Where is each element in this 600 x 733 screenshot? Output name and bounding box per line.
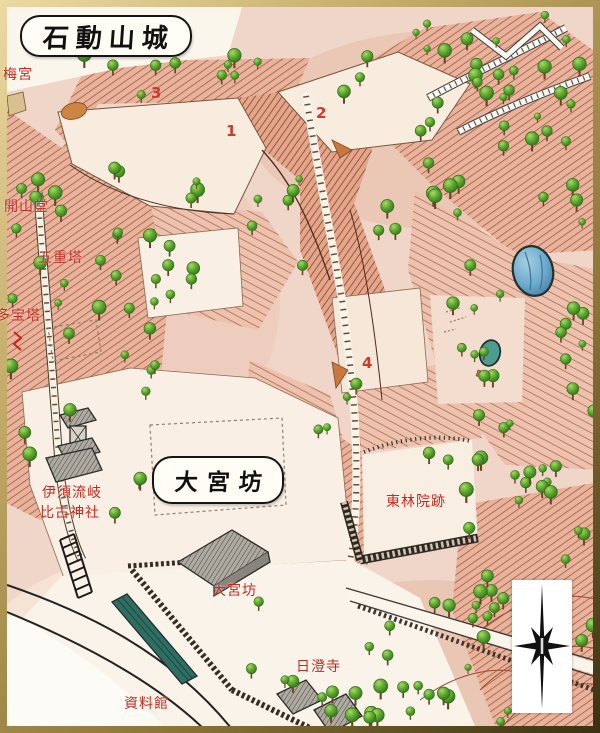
marker-bailey-2: 2: [316, 106, 326, 121]
marker-bailey-3: 3: [151, 86, 161, 101]
area-name: 大宮坊: [164, 463, 271, 497]
map-canvas: [7, 7, 593, 726]
map-title: 石動山城: [35, 18, 177, 55]
label-daiguubou-site: 大宮坊: [212, 582, 257, 600]
castle-map-illustration: 石動山城 大宮坊 梅宮 開山堂 五重塔 多宝塔 伊須流岐 比古神社 東林院跡 大…: [0, 0, 600, 733]
map-title-box: 石動山城: [20, 15, 192, 57]
label-nicchouji: 日澄寺: [296, 658, 341, 676]
label-shrine-line1: 伊須流岐: [42, 484, 102, 502]
label-umemiya: 梅宮: [3, 66, 33, 84]
terrain-drawing: [7, 7, 593, 726]
compass-rose: [512, 580, 572, 713]
label-kaisando: 開山堂: [4, 198, 49, 216]
label-torin-in-ato: 東林院跡: [386, 493, 446, 511]
north-arrow-icon: [512, 580, 572, 713]
label-shrine-line2: 比古神社: [40, 504, 100, 522]
label-tahoto: 多宝塔: [0, 307, 41, 325]
label-gojunoto: 五重塔: [38, 249, 83, 267]
area-name-box: 大宮坊: [152, 456, 284, 504]
marker-bailey-1: 1: [226, 124, 236, 139]
label-shiryoukan: 資料館: [124, 695, 169, 713]
marker-bailey-4: 4: [362, 356, 372, 371]
